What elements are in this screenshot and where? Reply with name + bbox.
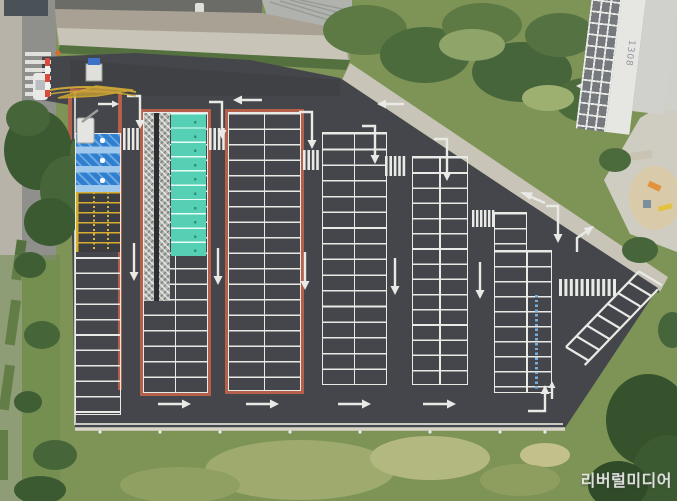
work-truck: [77, 110, 98, 143]
arrow-down-2: [214, 248, 223, 285]
arrow-right-2: [246, 400, 279, 409]
apartment-building: 1308: [576, 0, 677, 139]
arrow-down-3: [301, 252, 310, 290]
building-number: 1308: [623, 39, 636, 67]
arrow-bend-up: [528, 385, 550, 411]
entrance-island: [50, 86, 136, 98]
arrow-entrance: [98, 101, 119, 108]
markings-layer: [0, 0, 677, 501]
crosswalk-4: [385, 156, 405, 176]
arrow-up-small: [549, 381, 556, 399]
aerial-parking-lot-photo: .pcol.fmain::before{content:"";position:…: [0, 0, 677, 501]
arrow-bend-down-1: [127, 96, 145, 129]
arrow-bend-down-2: [209, 102, 227, 139]
arrow-left-1: [233, 96, 262, 105]
crosswalk-long: [559, 279, 616, 296]
zebra-crossings: [123, 128, 616, 296]
booth-sign: [88, 58, 100, 65]
arrow-bend-down-5: [434, 139, 452, 181]
crosswalk-1: [123, 128, 139, 150]
arrow-left-2: [377, 100, 404, 109]
arrow-down-5: [476, 262, 485, 299]
arrow-down-4: [391, 258, 400, 295]
toll-booth: [86, 58, 102, 81]
arrow-right-3: [338, 400, 371, 409]
arrow-down-1: [130, 243, 139, 281]
arrow-diag-upleft: [520, 192, 545, 203]
traffic-cone: [55, 50, 60, 55]
arrow-bend-down-3: [299, 112, 317, 149]
arrow-bend-down-4: [362, 126, 380, 164]
arrow-bend-down-6: [546, 206, 563, 243]
arrow-right-4: [423, 400, 456, 409]
lane-arrows: [98, 82, 601, 412]
arrow-diag-bend: [577, 226, 594, 252]
arrow-right-1: [158, 400, 191, 409]
watermark-text: 리버럴미디어: [581, 467, 672, 491]
crosswalk-5: [472, 210, 494, 227]
crosswalk-3: [303, 150, 319, 170]
